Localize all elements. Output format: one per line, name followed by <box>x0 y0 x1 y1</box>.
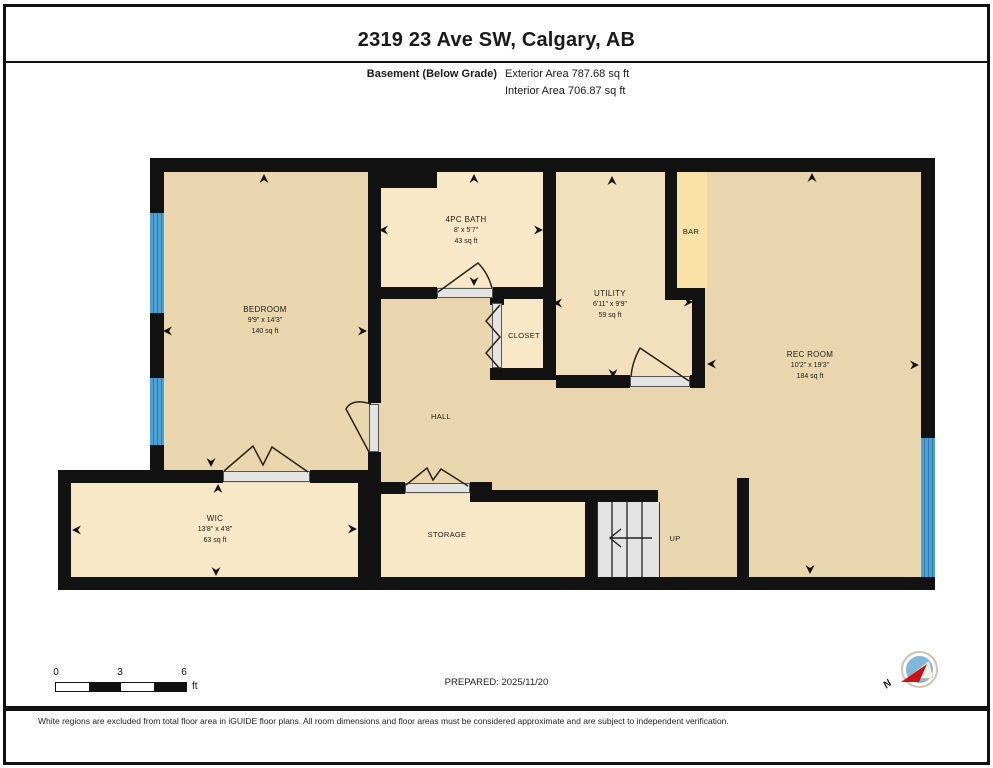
wall-left-a <box>150 172 164 213</box>
window-left-1 <box>150 213 164 313</box>
sill-wic-double-door <box>223 471 310 482</box>
room-label-hall: HALL <box>431 411 451 422</box>
sill-closet-bifold <box>492 303 502 368</box>
wall-bar-west <box>665 172 677 288</box>
wall-storage-east <box>585 502 597 577</box>
wall-right <box>921 172 935 438</box>
sill-storage-double-door <box>405 483 470 493</box>
wall-bottom <box>58 577 935 590</box>
wall-utility-east <box>692 288 705 388</box>
wall-bar-south <box>665 288 705 300</box>
wall-storage-north <box>482 490 658 502</box>
wall-bath-top-jog <box>368 172 437 188</box>
stairs-up-label: UP <box>669 533 680 544</box>
wall-bedroom-south-west <box>150 470 223 483</box>
wall-ext-top <box>58 470 164 483</box>
wall-top <box>150 158 935 172</box>
wall-stair-stub <box>737 478 749 577</box>
window-left-2 <box>150 378 164 445</box>
room-label-closet: CLOSET <box>508 330 540 341</box>
header-divider <box>6 61 987 63</box>
room-label-bedroom: BEDROOM 9'9" x 14'3" 140 sq ft <box>243 304 286 337</box>
floor-label: Basement (Below Grade) <box>0 68 497 80</box>
window-right <box>921 438 935 577</box>
wall-utility-south <box>556 375 630 388</box>
sill-utility-door <box>630 376 690 387</box>
footer-divider <box>6 706 987 711</box>
staircase <box>597 502 660 577</box>
room-label-storage: STORAGE <box>428 529 467 540</box>
floor-storage <box>380 494 585 577</box>
disclaimer-text: White regions are excluded from total fl… <box>38 716 973 726</box>
room-label-utility: UTILITY 6'11" x 9'9" 59 sq ft <box>593 288 627 321</box>
compass-face <box>906 656 933 683</box>
room-label-bar: BAR <box>683 226 699 237</box>
wall-ext-left <box>58 483 71 590</box>
room-label-bath: 4PC BATH 8' x 5'7" 43 sq ft <box>446 214 487 247</box>
page-title: 2319 23 Ave SW, Calgary, AB <box>0 29 993 52</box>
wall-bedroom-south-east <box>310 470 381 483</box>
wall-bath-south-west <box>368 287 437 299</box>
wall-hall-south-a <box>378 482 405 494</box>
exterior-area: Exterior Area 787.68 sq ft <box>505 68 629 80</box>
interior-area: Interior Area 706.87 sq ft <box>505 85 625 97</box>
room-label-wic: WIC 13'8" x 4'8" 63 sq ft <box>198 513 233 546</box>
sill-bedroom-door <box>369 404 379 452</box>
floorplan-page: 2319 23 Ave SW, Calgary, AB Basement (Be… <box>0 0 993 768</box>
wall-utility-west <box>543 172 556 380</box>
prepared-date: PREPARED: 2025/11/20 <box>0 677 993 688</box>
sill-bath-door <box>437 288 493 298</box>
wall-left-b <box>150 313 164 378</box>
room-label-rec-room: REC ROOM 10'2" x 19'3" 184 sq ft <box>787 349 833 382</box>
